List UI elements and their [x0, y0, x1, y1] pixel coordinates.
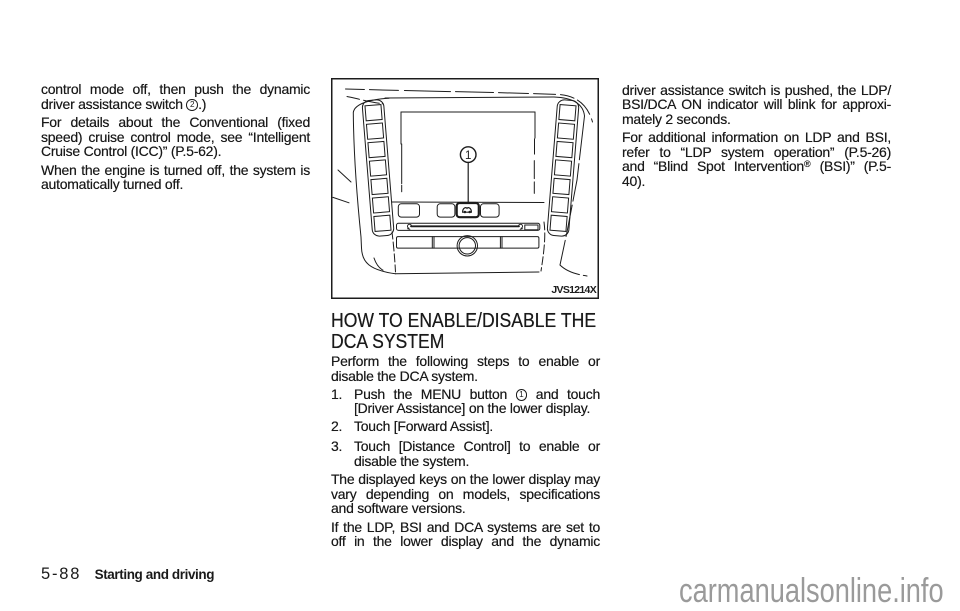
- svg-text:JVS1214X: JVS1214X: [551, 284, 596, 296]
- svg-text:1: 1: [465, 150, 471, 162]
